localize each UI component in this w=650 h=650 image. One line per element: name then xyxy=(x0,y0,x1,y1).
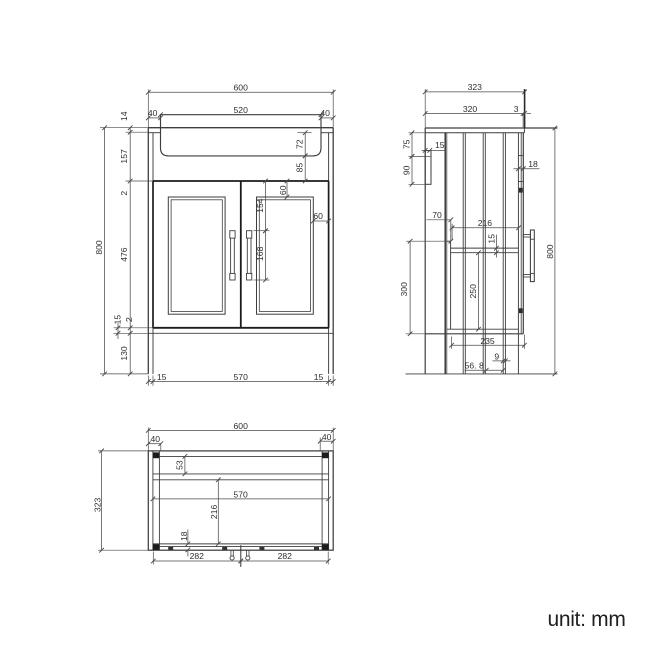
svg-text:75: 75 xyxy=(401,139,411,149)
svg-text:800: 800 xyxy=(545,244,555,259)
svg-text:15: 15 xyxy=(486,234,496,244)
svg-text:40: 40 xyxy=(322,432,332,442)
svg-text:9: 9 xyxy=(494,351,499,361)
svg-text:15: 15 xyxy=(435,140,445,150)
svg-text:476: 476 xyxy=(119,247,129,262)
svg-text:570: 570 xyxy=(234,372,249,382)
svg-text:70: 70 xyxy=(432,210,442,220)
svg-text:520: 520 xyxy=(234,105,249,115)
svg-text:570: 570 xyxy=(233,489,248,499)
svg-text:130: 130 xyxy=(119,346,129,361)
svg-text:323: 323 xyxy=(92,498,102,513)
svg-text:60: 60 xyxy=(278,185,288,195)
svg-text:323: 323 xyxy=(468,82,483,92)
svg-text:216: 216 xyxy=(478,218,493,228)
svg-text:40: 40 xyxy=(151,434,161,444)
svg-text:300: 300 xyxy=(399,282,409,297)
svg-text:40: 40 xyxy=(320,108,330,118)
svg-text:15: 15 xyxy=(157,372,167,382)
svg-text:40: 40 xyxy=(148,108,158,118)
svg-text:800: 800 xyxy=(94,240,104,255)
svg-text:18: 18 xyxy=(179,531,189,541)
svg-text:53: 53 xyxy=(174,460,184,470)
svg-text:72: 72 xyxy=(295,139,305,149)
svg-text:85: 85 xyxy=(295,163,305,173)
svg-text:unit: mm: unit: mm xyxy=(547,608,625,631)
svg-text:90: 90 xyxy=(401,165,411,175)
svg-text:250: 250 xyxy=(468,284,478,299)
svg-text:282: 282 xyxy=(278,551,293,561)
svg-text:154: 154 xyxy=(255,198,265,213)
svg-text:168: 168 xyxy=(255,246,265,261)
svg-text:600: 600 xyxy=(234,83,249,93)
svg-text:3: 3 xyxy=(514,104,519,114)
svg-text:56. 8: 56. 8 xyxy=(465,361,484,371)
svg-text:18: 18 xyxy=(528,159,538,169)
svg-text:15: 15 xyxy=(314,372,324,382)
svg-text:320: 320 xyxy=(463,104,478,114)
svg-text:235: 235 xyxy=(480,336,495,346)
svg-text:157: 157 xyxy=(119,149,129,164)
svg-text:15: 15 xyxy=(112,315,122,325)
svg-text:216: 216 xyxy=(209,505,219,520)
svg-text:14: 14 xyxy=(119,111,129,121)
svg-text:60: 60 xyxy=(313,211,323,221)
svg-text:2: 2 xyxy=(124,317,134,322)
svg-text:600: 600 xyxy=(234,421,249,431)
svg-text:282: 282 xyxy=(190,551,205,561)
svg-text:2: 2 xyxy=(119,191,129,196)
